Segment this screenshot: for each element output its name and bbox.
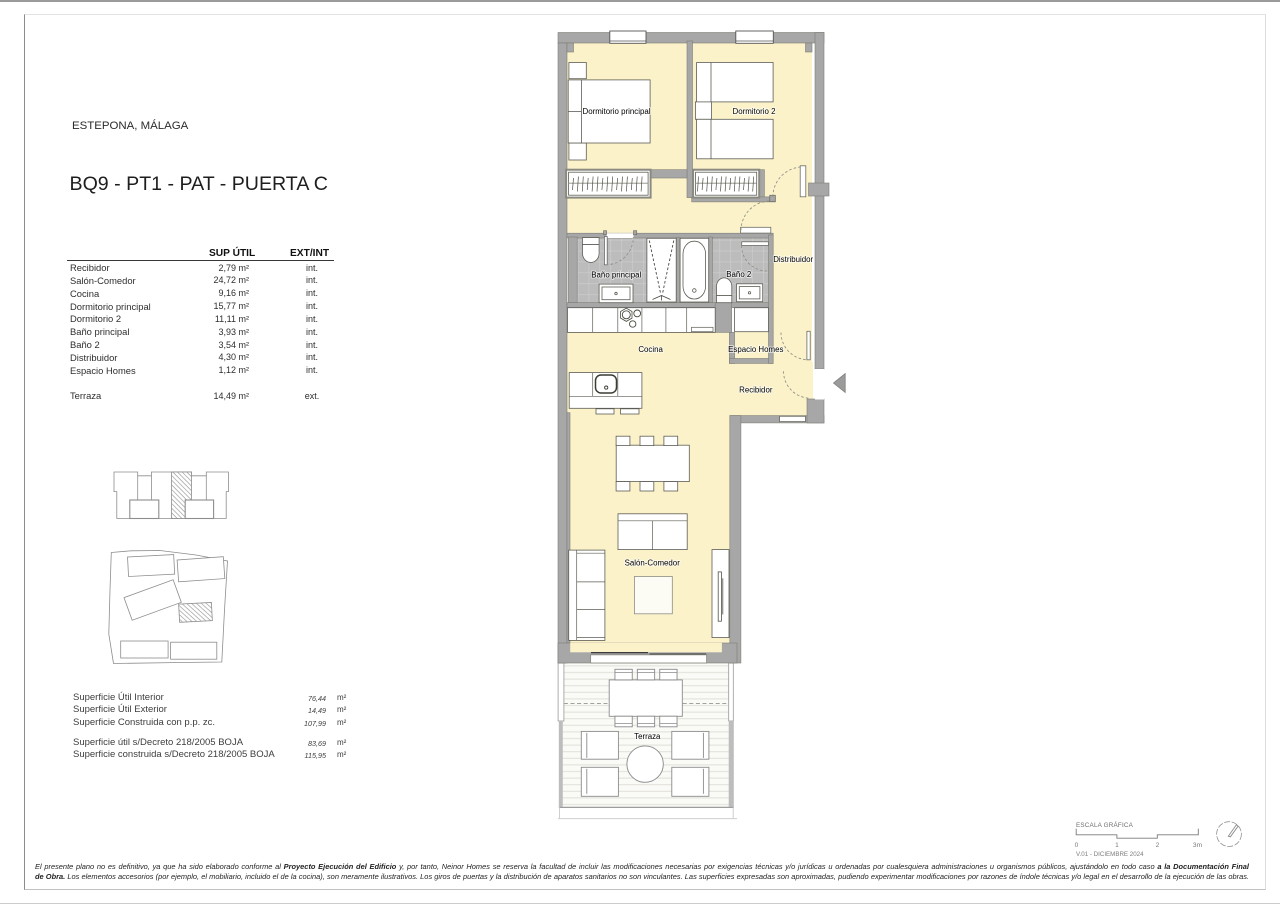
svg-text:Recibidor: Recibidor [739, 385, 773, 394]
svg-text:2: 2 [1156, 842, 1160, 849]
svg-text:3m: 3m [1193, 842, 1203, 849]
svg-text:Baño principal: Baño principal [591, 271, 641, 280]
svg-text:1: 1 [1115, 842, 1119, 849]
svg-text:Dormitorio 2: Dormitorio 2 [733, 107, 776, 116]
svg-text:Espacio Homes: Espacio Homes [728, 345, 783, 354]
svg-text:Baño 2: Baño 2 [726, 270, 751, 279]
svg-text:Terraza: Terraza [634, 732, 661, 741]
svg-text:Dormitorio principal: Dormitorio principal [583, 107, 651, 116]
svg-text:Cocina: Cocina [638, 345, 663, 354]
svg-text:Salón-Comedor: Salón-Comedor [625, 558, 681, 567]
svg-text:0: 0 [1075, 842, 1079, 849]
svg-text:Distribuidor: Distribuidor [773, 255, 813, 264]
